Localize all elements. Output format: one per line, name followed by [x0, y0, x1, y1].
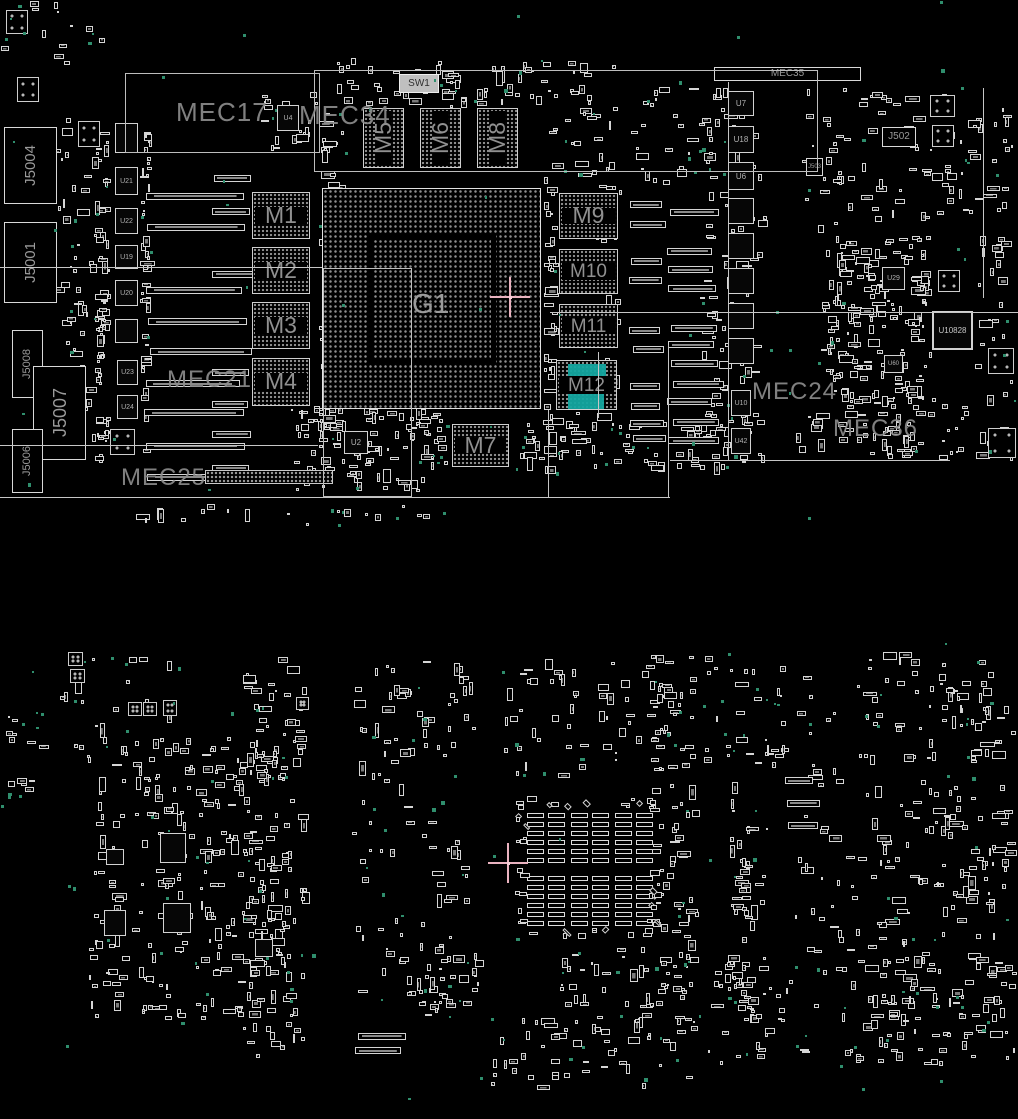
teal-testpoint	[1, 805, 4, 808]
scatter-part	[201, 957, 211, 963]
scatter-part	[900, 804, 903, 807]
scatter-part	[750, 921, 755, 930]
scatter-part	[663, 882, 670, 891]
teal-testpoint	[74, 700, 77, 703]
scatter-part	[285, 889, 287, 898]
scatter-part	[686, 812, 691, 818]
scatter-part	[1005, 965, 1013, 971]
cap-pad	[571, 912, 588, 917]
cap-ring-part	[649, 893, 653, 899]
scatter-part	[872, 818, 878, 830]
scatter-part	[567, 966, 571, 972]
fiducial-marker	[128, 702, 142, 716]
scatter-part	[814, 950, 822, 953]
scatter-part	[271, 1041, 281, 1047]
scatter-part	[690, 677, 697, 682]
scatter-part	[742, 858, 746, 867]
scatter-part	[769, 987, 772, 990]
cap-pad	[571, 822, 588, 827]
scatter-part	[971, 719, 974, 725]
scatter-part	[621, 680, 629, 688]
scatter-part	[384, 779, 390, 783]
scatter-part	[932, 1034, 940, 1037]
scatter-part	[776, 994, 781, 998]
scatter-part	[976, 963, 981, 970]
scatter-part	[239, 784, 245, 796]
teal-testpoint	[282, 757, 285, 760]
scatter-part	[934, 792, 939, 797]
teal-testpoint	[373, 808, 376, 811]
scatter-part	[472, 988, 478, 992]
scatter-part	[925, 828, 928, 832]
scatter-part	[252, 899, 259, 903]
scatter-part	[386, 948, 389, 951]
scatter-part	[382, 968, 386, 976]
scatter-part	[293, 918, 296, 924]
scatter-part	[969, 958, 976, 960]
scatter-part	[619, 1061, 627, 1065]
cap-pad	[548, 813, 565, 818]
teal-testpoint	[126, 730, 129, 733]
scatter-part	[260, 880, 264, 885]
scatter-part	[971, 1055, 977, 1058]
scatter-part	[266, 725, 268, 727]
scatter-part	[380, 849, 383, 852]
scatter-part	[888, 961, 891, 964]
scatter-part	[625, 1001, 629, 1007]
scatter-part	[244, 833, 253, 839]
scatter-part	[705, 656, 713, 661]
scatter-part	[993, 933, 996, 940]
scatter-part	[839, 937, 844, 943]
cap-pad	[548, 849, 565, 854]
scatter-part	[262, 922, 266, 927]
cap-pad	[592, 822, 609, 827]
scatter-part	[663, 730, 666, 733]
scatter-part	[21, 783, 27, 786]
teal-testpoint	[956, 996, 959, 999]
teal-testpoint	[990, 702, 993, 705]
scatter-part	[178, 873, 180, 875]
scatter-part	[268, 919, 272, 922]
scatter-part	[454, 699, 458, 703]
teal-testpoint	[728, 997, 731, 1000]
scatter-part	[362, 935, 364, 940]
teal-testpoint	[844, 1007, 846, 1009]
scatter-part	[782, 745, 785, 754]
scatter-part	[744, 1018, 749, 1021]
scatter-part	[711, 1004, 724, 1008]
scatter-part	[1002, 859, 1009, 867]
scatter-part	[680, 692, 683, 699]
scatter-part	[135, 813, 140, 816]
scatter-part	[977, 857, 984, 861]
scatter-part	[665, 661, 674, 664]
ic-unlabeled[interactable]	[163, 903, 191, 933]
board-trace-line	[550, 312, 1018, 313]
scatter-part	[173, 743, 179, 752]
ic-unlabeled[interactable]	[106, 849, 124, 865]
scatter-part	[532, 728, 536, 738]
cap-pad	[571, 921, 588, 926]
scatter-part	[521, 1053, 525, 1060]
scatter-part	[599, 711, 605, 721]
scatter-part	[249, 932, 253, 938]
scatter-part	[196, 1003, 201, 1006]
scatter-part	[626, 1064, 630, 1073]
scatter-part	[673, 965, 677, 967]
scatter-part	[664, 725, 668, 731]
scatter-part	[897, 1032, 904, 1040]
scatter-part	[564, 1028, 569, 1032]
scatter-part	[919, 727, 922, 730]
teal-testpoint	[178, 667, 181, 670]
teal-testpoint	[862, 1088, 865, 1091]
scatter-part	[246, 902, 250, 909]
teal-testpoint	[902, 991, 904, 993]
scatter-part	[897, 909, 907, 914]
scatter-part	[550, 679, 554, 684]
scatter-part	[872, 697, 878, 702]
scatter-part	[541, 1045, 545, 1049]
scatter-part	[651, 758, 659, 762]
scatter-part	[737, 840, 743, 848]
teal-testpoint	[516, 938, 519, 941]
teal-testpoint	[945, 643, 947, 645]
cap-pad	[592, 858, 609, 863]
scatter-part	[836, 779, 843, 784]
scatter-part	[301, 819, 308, 833]
scatter-part	[905, 957, 909, 961]
scatter-part	[622, 956, 625, 958]
scatter-part	[430, 977, 435, 991]
scatter-part	[142, 840, 148, 847]
scatter-part	[850, 1049, 853, 1053]
scatter-part	[986, 902, 995, 905]
scatter-part	[720, 1061, 724, 1065]
scatter-part	[805, 863, 809, 871]
teal-testpoint	[733, 750, 735, 752]
scatter-part	[209, 939, 211, 943]
ic-unlabeled[interactable]	[160, 833, 186, 863]
scatter-part	[247, 1041, 255, 1044]
scatter-part	[606, 716, 609, 719]
scatter-part	[450, 693, 455, 698]
component-label: G1	[412, 288, 449, 320]
scatter-part	[864, 754, 868, 758]
scatter-part	[597, 1016, 603, 1020]
teal-testpoint	[151, 816, 154, 819]
scatter-part	[882, 994, 886, 998]
scatter-part	[92, 658, 95, 661]
teal-testpoint	[755, 810, 757, 812]
scatter-part	[434, 1001, 436, 1003]
scatter-part	[659, 683, 663, 687]
component-label: M2	[265, 259, 297, 282]
scatter-part	[554, 670, 563, 674]
scatter-part	[920, 987, 935, 991]
scatter-part	[204, 802, 214, 807]
scatter-part	[95, 1014, 99, 1018]
scatter-part	[512, 1068, 517, 1075]
scatter-part	[259, 718, 267, 724]
teal-testpoint	[877, 725, 880, 728]
scatter-part	[650, 1003, 654, 1007]
scatter-part	[660, 869, 664, 873]
scatter-part	[189, 834, 195, 839]
scatter-part	[574, 695, 577, 698]
teal-testpoint	[248, 860, 250, 862]
scatter-part	[960, 869, 964, 878]
scatter-part	[730, 837, 734, 842]
scatter-part	[294, 1028, 301, 1034]
cap-pad	[615, 822, 632, 827]
scatter-part	[522, 1018, 525, 1024]
scatter-part	[372, 773, 375, 781]
scatter-part	[262, 885, 265, 891]
teal-testpoint	[449, 1016, 452, 1019]
scatter-part	[604, 1040, 611, 1042]
teal-testpoint	[372, 736, 376, 740]
teal-testpoint	[424, 989, 427, 992]
cap-pad	[636, 876, 653, 881]
scatter-part	[918, 1048, 923, 1051]
scatter-part	[244, 797, 250, 805]
scatter-part	[693, 1021, 695, 1023]
cap-ring-part	[518, 805, 524, 810]
teal-testpoint	[206, 862, 208, 864]
scatter-part	[287, 666, 300, 673]
scatter-part	[509, 1059, 518, 1063]
teal-testpoint	[912, 938, 915, 941]
cap-ring-part	[529, 932, 539, 936]
teal-testpoint	[682, 902, 684, 904]
scatter-part	[101, 814, 103, 819]
cap-ring-part	[565, 802, 572, 809]
scatter-part	[965, 980, 974, 985]
scatter-part	[360, 859, 366, 864]
scatter-part	[842, 1013, 845, 1022]
scatter-part	[766, 828, 768, 830]
scatter-part	[735, 682, 748, 687]
scatter-part	[399, 688, 408, 693]
scatter-part	[90, 955, 98, 960]
scatter-part	[921, 780, 926, 785]
scatter-part	[659, 767, 662, 770]
scatter-part	[435, 947, 445, 954]
scatter-part	[287, 954, 290, 959]
scatter-part	[937, 882, 939, 886]
scatter-part	[677, 1030, 687, 1034]
scatter-part	[109, 880, 116, 884]
scatter-part	[971, 750, 983, 755]
component-label-band: M12	[559, 376, 613, 394]
teal-testpoint	[728, 653, 731, 656]
scatter-part	[899, 652, 912, 659]
scatter-part	[865, 965, 879, 972]
scatter-part	[386, 951, 395, 957]
scatter-part	[995, 962, 1003, 965]
scatter-part	[942, 705, 949, 710]
component-label-band: M4	[255, 373, 307, 390]
scatter-part	[969, 890, 979, 895]
cap-pad	[527, 921, 544, 926]
scatter-part	[798, 857, 803, 863]
scatter-part	[75, 682, 82, 694]
scatter-part	[813, 769, 822, 775]
scatter-part	[1005, 1031, 1009, 1034]
scatter-part	[231, 840, 239, 855]
scatter-part	[112, 982, 121, 986]
teal-testpoint	[454, 775, 457, 778]
cap-pad	[592, 876, 609, 881]
scatter-part	[218, 944, 222, 949]
scatter-part	[217, 803, 220, 809]
scatter-part	[231, 918, 236, 926]
scatter-part	[661, 961, 667, 966]
scatter-part	[666, 972, 669, 975]
scatter-part	[953, 1002, 960, 1004]
scatter-part	[271, 892, 273, 902]
teal-testpoint	[934, 939, 936, 941]
scatter-part	[896, 1052, 903, 1061]
scatter-part	[103, 981, 112, 986]
cap-pad	[636, 822, 653, 827]
scatter-part	[266, 966, 271, 976]
cap-ring-part	[582, 799, 591, 808]
scatter-part	[384, 751, 387, 757]
scatter-part	[207, 912, 212, 920]
scatter-part	[670, 1042, 676, 1051]
teal-testpoint	[181, 1022, 184, 1025]
scatter-part	[871, 875, 877, 880]
ic-unlabeled[interactable]	[255, 939, 273, 957]
component-label-band: M10	[562, 263, 614, 279]
scatter-part	[115, 897, 125, 902]
region-label-MEC24: MEC24	[752, 380, 837, 404]
teal-testpoint	[266, 957, 269, 960]
scatter-part	[661, 924, 668, 932]
teal-testpoint	[382, 893, 385, 896]
scatter-part	[427, 964, 431, 971]
scatter-part	[736, 737, 749, 743]
scatter-part	[425, 975, 429, 979]
scatter-part	[243, 675, 257, 683]
scatter-part	[951, 905, 956, 910]
scatter-part	[552, 1075, 559, 1080]
cap-pad	[615, 813, 632, 818]
scatter-part	[155, 777, 158, 780]
scatter-part	[217, 952, 221, 961]
scatter-part	[777, 688, 780, 695]
scatter-part	[267, 1008, 275, 1013]
scatter-part	[525, 762, 527, 771]
scatter-part	[200, 887, 203, 890]
pad-bar	[785, 777, 813, 784]
scatter-part	[914, 956, 922, 968]
scatter-part	[740, 869, 751, 875]
teal-testpoint	[384, 829, 387, 832]
scatter-part	[880, 973, 887, 978]
cap-ring-part	[650, 870, 660, 875]
component-label: M7	[465, 434, 497, 457]
scatter-part	[730, 669, 733, 672]
scatter-part	[896, 727, 902, 731]
scatter-part	[968, 876, 976, 889]
scatter-part	[800, 1049, 809, 1051]
scatter-part	[913, 801, 922, 805]
teal-testpoint	[987, 1021, 990, 1024]
teal-testpoint	[211, 780, 214, 783]
scatter-part	[378, 773, 381, 776]
scatter-part	[989, 848, 991, 856]
teal-testpoint	[366, 867, 369, 870]
scatter-part	[29, 780, 35, 782]
scatter-part	[201, 901, 203, 909]
board-trace-line	[983, 88, 984, 298]
scatter-part	[732, 782, 738, 793]
scatter-part	[301, 897, 305, 901]
cap-ring-part	[631, 798, 635, 801]
scatter-part	[971, 849, 980, 854]
scatter-part	[636, 736, 642, 744]
scatter-part	[704, 757, 713, 762]
teal-testpoint	[674, 744, 677, 747]
teal-testpoint	[441, 801, 444, 804]
scatter-part	[763, 993, 766, 995]
scatter-part	[598, 684, 610, 691]
scatter-part	[247, 810, 250, 813]
scatter-part	[243, 849, 247, 854]
scatter-part	[879, 937, 887, 940]
scatter-part	[92, 984, 98, 989]
teal-testpoint	[381, 999, 383, 1001]
scatter-part	[809, 695, 812, 698]
scatter-part	[939, 1061, 943, 1066]
cap-ring-part	[636, 800, 643, 807]
scatter-part	[282, 921, 286, 927]
scatter-part	[420, 943, 423, 951]
scatter-part	[614, 1048, 618, 1052]
component-label-band: M2	[255, 262, 307, 279]
scatter-part	[211, 998, 214, 1006]
scatter-part	[927, 757, 931, 759]
scatter-part	[91, 1001, 93, 1009]
teal-testpoint	[480, 1077, 483, 1080]
scatter-part	[27, 741, 36, 744]
cap-pad	[636, 858, 653, 863]
scatter-part	[744, 669, 748, 674]
scatter-part	[742, 965, 746, 971]
scatter-part	[139, 967, 145, 978]
scatter-part	[868, 945, 877, 949]
teal-testpoint	[256, 709, 258, 711]
scatter-part	[961, 995, 965, 999]
scatter-part	[582, 1070, 590, 1073]
scatter-part	[243, 1027, 246, 1031]
cap-ring-part	[516, 817, 520, 822]
ic-unlabeled[interactable]	[104, 910, 126, 936]
cap-pad	[592, 831, 609, 836]
scatter-part	[1004, 867, 1007, 872]
scatter-part	[407, 976, 412, 985]
scatter-part	[579, 764, 586, 769]
teal-testpoint	[401, 915, 403, 917]
scatter-part	[201, 1016, 206, 1020]
scatter-part	[922, 957, 926, 965]
scatter-part	[949, 998, 951, 1008]
scatter-part	[670, 784, 674, 789]
